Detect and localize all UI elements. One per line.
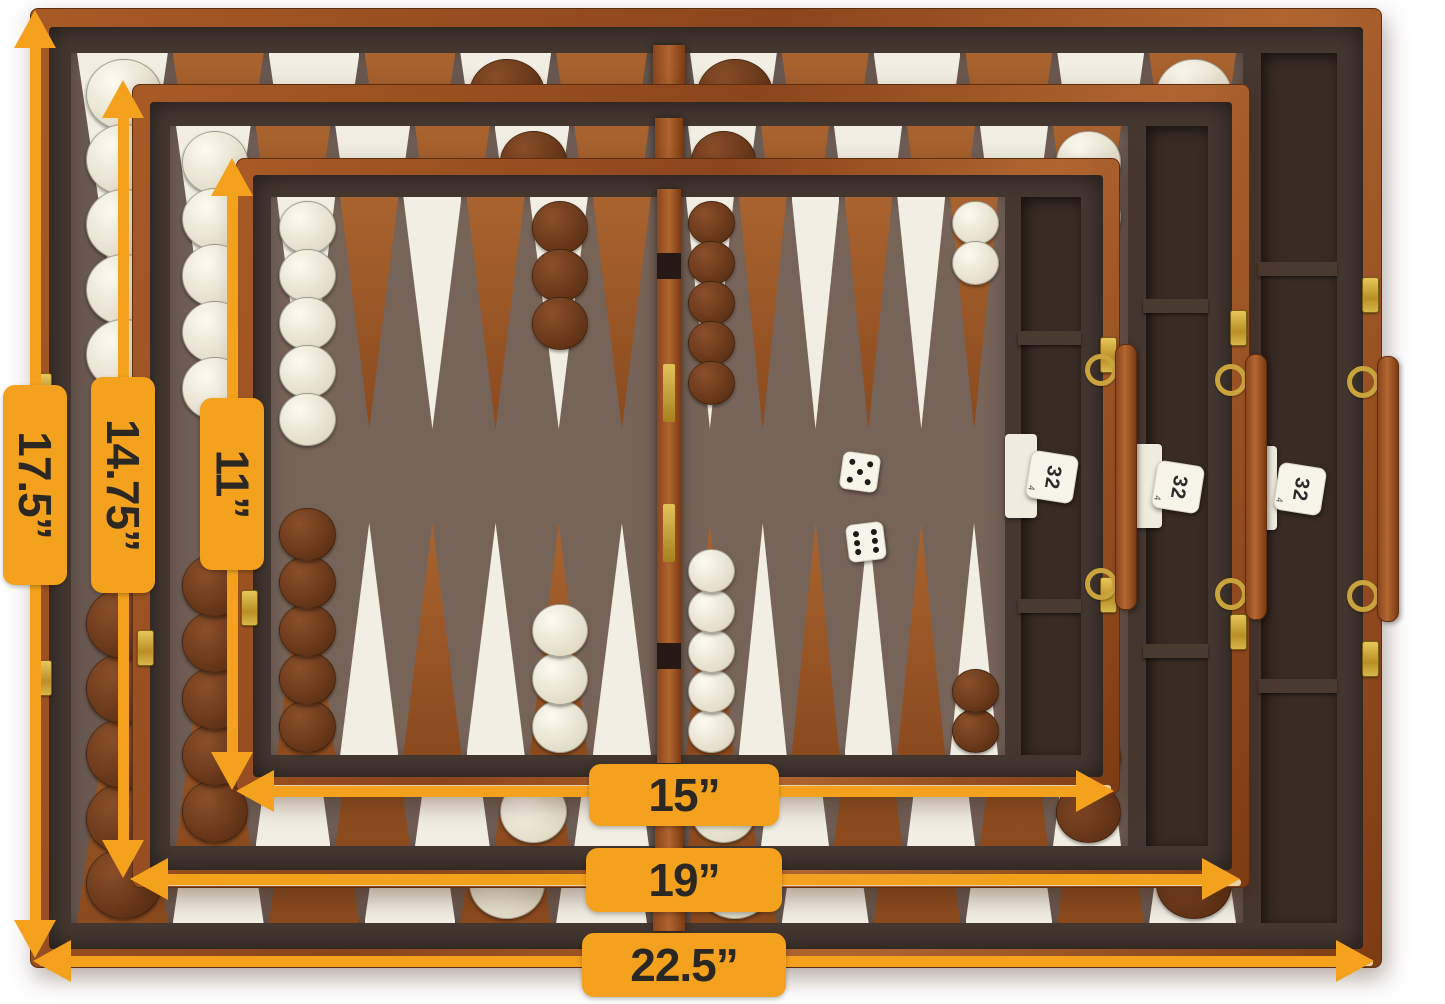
checker-white bbox=[279, 297, 335, 350]
checker-white bbox=[688, 669, 735, 714]
carry-handle bbox=[1245, 354, 1267, 620]
dimension-label-width-large: 22.5” bbox=[582, 933, 786, 997]
checker-brown bbox=[279, 700, 335, 753]
hinge-notch bbox=[657, 253, 681, 279]
checker-brown bbox=[688, 241, 735, 286]
handle-ring bbox=[1085, 354, 1117, 386]
checker-white bbox=[279, 201, 335, 254]
checker-brown bbox=[532, 297, 588, 350]
die-pip bbox=[846, 476, 853, 483]
die bbox=[845, 521, 887, 563]
compartment-divider bbox=[1143, 644, 1208, 658]
gold-latch bbox=[1230, 614, 1247, 650]
checker-brown bbox=[688, 281, 735, 326]
doubling-cube-value: 32 bbox=[1165, 473, 1192, 501]
handle-ring bbox=[1347, 366, 1379, 398]
checker-brown bbox=[279, 556, 335, 609]
doubling-cube: 324 bbox=[1273, 462, 1328, 517]
die-pip bbox=[867, 461, 874, 468]
arrowhead-right bbox=[1336, 940, 1374, 982]
handle-ring bbox=[1085, 568, 1117, 600]
die-pip bbox=[870, 529, 877, 536]
checker-brown bbox=[279, 604, 335, 657]
hinge-plate bbox=[663, 364, 675, 422]
checker-white bbox=[688, 549, 735, 594]
checker-brown bbox=[688, 201, 735, 246]
dimension-text: 11” bbox=[205, 450, 259, 519]
gold-latch bbox=[1362, 641, 1379, 677]
gold-latch bbox=[1230, 310, 1247, 346]
product-image-nested-backgammon-sets: 324324324 17.5” 14.75” 11” 15” 19” 22.5” bbox=[0, 0, 1445, 1004]
dimension-label-width-small: 15” bbox=[589, 764, 779, 826]
arrowhead-up bbox=[102, 80, 144, 118]
doubling-cube: 324 bbox=[1025, 450, 1080, 505]
gold-latch bbox=[1362, 277, 1379, 313]
gold-latch bbox=[241, 590, 258, 626]
doubling-cube-value: 32 bbox=[1287, 475, 1314, 503]
die-pip bbox=[854, 540, 861, 547]
handle-ring bbox=[1215, 364, 1247, 396]
die-pip bbox=[857, 469, 864, 476]
die-pip bbox=[853, 531, 860, 538]
doubling-cube-side-value: 4 bbox=[1274, 497, 1285, 504]
checker-white bbox=[688, 629, 735, 674]
dimension-text: 17.5” bbox=[8, 431, 62, 539]
checker-white bbox=[279, 393, 335, 446]
checker-white bbox=[532, 604, 588, 657]
doubling-cube-side-value: 4 bbox=[1152, 495, 1163, 502]
die-pip bbox=[873, 546, 880, 553]
checker-brown bbox=[688, 321, 735, 366]
handle-ring bbox=[1215, 578, 1247, 610]
handle-ring bbox=[1347, 580, 1379, 612]
dimension-label-height-large: 17.5” bbox=[3, 385, 67, 585]
arrowhead-up bbox=[14, 10, 56, 48]
checker-brown bbox=[279, 508, 335, 561]
checker-white bbox=[688, 709, 735, 754]
dimension-label-height-medium: 14.75” bbox=[91, 377, 155, 593]
hinge-notch bbox=[657, 643, 681, 669]
arrowhead-left bbox=[236, 770, 274, 812]
carry-handle bbox=[1115, 344, 1137, 610]
compartment-divider bbox=[1258, 262, 1337, 276]
arrowhead-left bbox=[33, 940, 71, 982]
arrowhead-up bbox=[211, 158, 253, 196]
dimension-label-height-small: 11” bbox=[200, 398, 264, 570]
compartment-divider bbox=[1018, 599, 1081, 613]
checker-white bbox=[279, 345, 335, 398]
checker-brown bbox=[279, 652, 335, 705]
carry-handle bbox=[1377, 356, 1399, 622]
doubling-cube-value: 32 bbox=[1039, 463, 1066, 491]
compartment-divider bbox=[1018, 331, 1081, 345]
dimension-text: 22.5” bbox=[630, 938, 738, 992]
die-pip bbox=[872, 538, 879, 545]
arrowhead-left bbox=[130, 858, 168, 900]
checker-brown bbox=[688, 361, 735, 406]
arrowhead-right bbox=[1076, 770, 1114, 812]
hinge-plate bbox=[663, 504, 675, 562]
dimension-text: 14.75” bbox=[96, 419, 150, 551]
dimension-text: 15” bbox=[648, 768, 719, 822]
gold-latch bbox=[137, 630, 154, 666]
arrowhead-right bbox=[1202, 858, 1240, 900]
dimension-text: 19” bbox=[648, 853, 719, 907]
die-pip bbox=[855, 549, 862, 556]
doubling-cube: 324 bbox=[1151, 460, 1206, 515]
die-pip bbox=[864, 479, 871, 486]
checker-white bbox=[688, 589, 735, 634]
die-pip bbox=[849, 458, 856, 465]
checker-white bbox=[279, 249, 335, 302]
dimension-label-width-medium: 19” bbox=[586, 848, 782, 912]
compartment-divider bbox=[1143, 299, 1208, 313]
checker-white bbox=[532, 652, 588, 705]
backgammon-case-small: 324 bbox=[236, 158, 1120, 794]
doubling-cube-side-value: 4 bbox=[1026, 485, 1037, 492]
die bbox=[839, 451, 882, 494]
checker-white bbox=[532, 700, 588, 753]
compartment-divider bbox=[1258, 679, 1337, 693]
